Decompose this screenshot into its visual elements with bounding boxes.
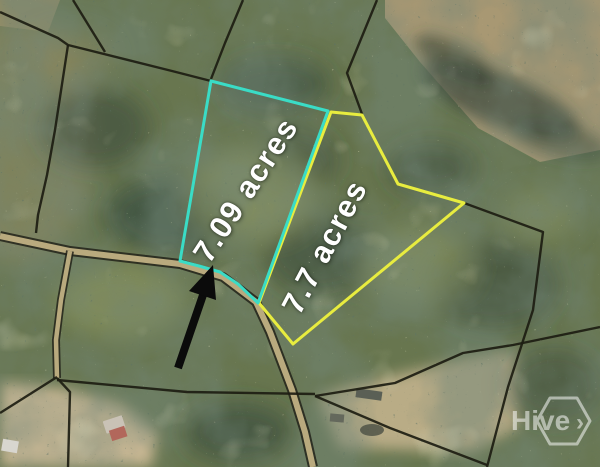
- aerial-parcel-map: Hive › 7.09 acres 7.7 acres: [0, 0, 600, 467]
- hive-chevron-icon: ›: [576, 409, 584, 436]
- map-canvas: Hive ›: [0, 0, 600, 467]
- aerial-imagery: [0, 0, 600, 467]
- hive-watermark-text: Hive: [511, 405, 570, 436]
